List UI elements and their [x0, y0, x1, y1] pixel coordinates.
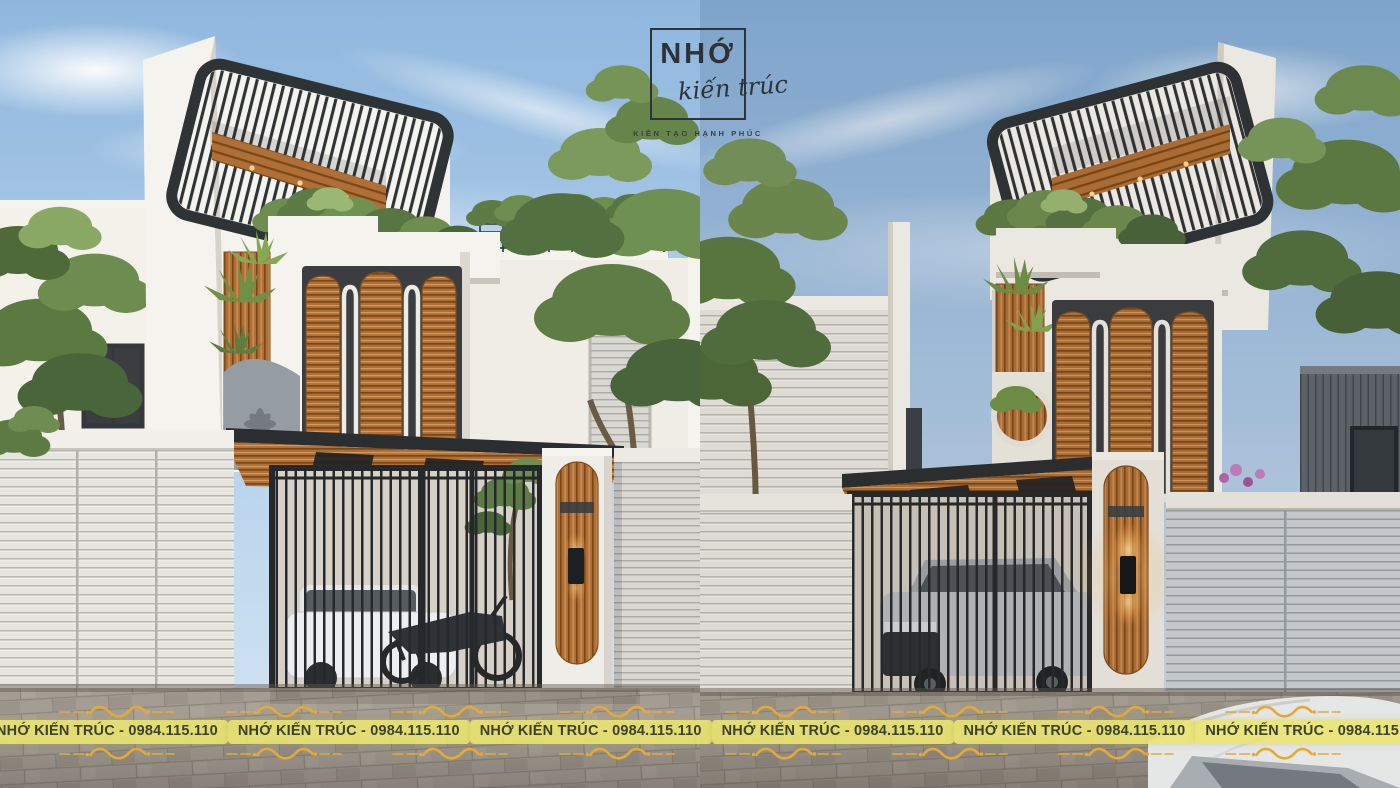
- house-scene-dusk: [700, 0, 1400, 788]
- watermark-pill: NHỚ KIẾN TRÚC - 0984.115.110: [0, 720, 228, 744]
- garage-door: [614, 448, 700, 690]
- gold-ornament: [1057, 704, 1175, 719]
- gold-ornament: [58, 704, 176, 719]
- house-scene-day: [0, 0, 700, 788]
- gate-bars: [275, 471, 537, 687]
- gold-ornament: [891, 704, 1009, 719]
- gold-ornament: [558, 746, 676, 761]
- gold-ornament: [891, 746, 1009, 761]
- watermark-band: NHỚ KIẾN TRÚC - 0984.115.110 NHỚ KIẾN TR…: [0, 704, 1400, 761]
- gold-ornament: [225, 704, 343, 719]
- logo-frame: NHỚ kiến trúc: [650, 28, 746, 120]
- watermark-pill: NHỚ KIẾN TRÚC - 0984.115.110: [954, 720, 1196, 744]
- gold-ornament: [1224, 746, 1342, 761]
- render-panel-dusk: [700, 0, 1400, 788]
- logo-tagline: KIẾN TẠO HẠNH PHÚC: [613, 129, 783, 138]
- watermark-pills: NHỚ KIẾN TRÚC - 0984.115.110 NHỚ KIẾN TR…: [0, 720, 1400, 744]
- ornament-row-top: [0, 704, 1400, 719]
- gold-ornament: [724, 704, 842, 719]
- studio-logo: NHỚ kiến trúc KIẾN TẠO HẠNH PHÚC: [613, 28, 783, 138]
- gold-ornament: [558, 704, 676, 719]
- watermark-pill: NHỚ KIẾN TRÚC - 0984.115.110: [1195, 720, 1400, 744]
- gold-ornament: [391, 704, 509, 719]
- gold-ornament: [391, 746, 509, 761]
- wall-lamp: [568, 548, 584, 584]
- gold-ornament: [225, 746, 343, 761]
- gold-ornament: [58, 746, 176, 761]
- watermark-pill: NHỚ KIẾN TRÚC - 0984.115.110: [712, 720, 954, 744]
- gold-ornament: [1057, 746, 1175, 761]
- architectural-render-sheet: NHỚ kiến trúc KIẾN TẠO HẠNH PHÚC NHỚ KIẾ…: [0, 0, 1400, 788]
- ornament-row-bottom: [0, 746, 1400, 761]
- watermark-pill: NHỚ KIẾN TRÚC - 0984.115.110: [470, 720, 712, 744]
- nameplate: [560, 502, 594, 513]
- watermark-pill: NHỚ KIẾN TRÚC - 0984.115.110: [228, 720, 470, 744]
- entry-pillar: [542, 448, 612, 698]
- gold-ornament: [724, 746, 842, 761]
- boundary-fence: [0, 406, 234, 690]
- logo-brand-text: NHỚ: [652, 40, 744, 69]
- gold-ornament: [1224, 704, 1342, 719]
- render-panel-day: [0, 0, 700, 788]
